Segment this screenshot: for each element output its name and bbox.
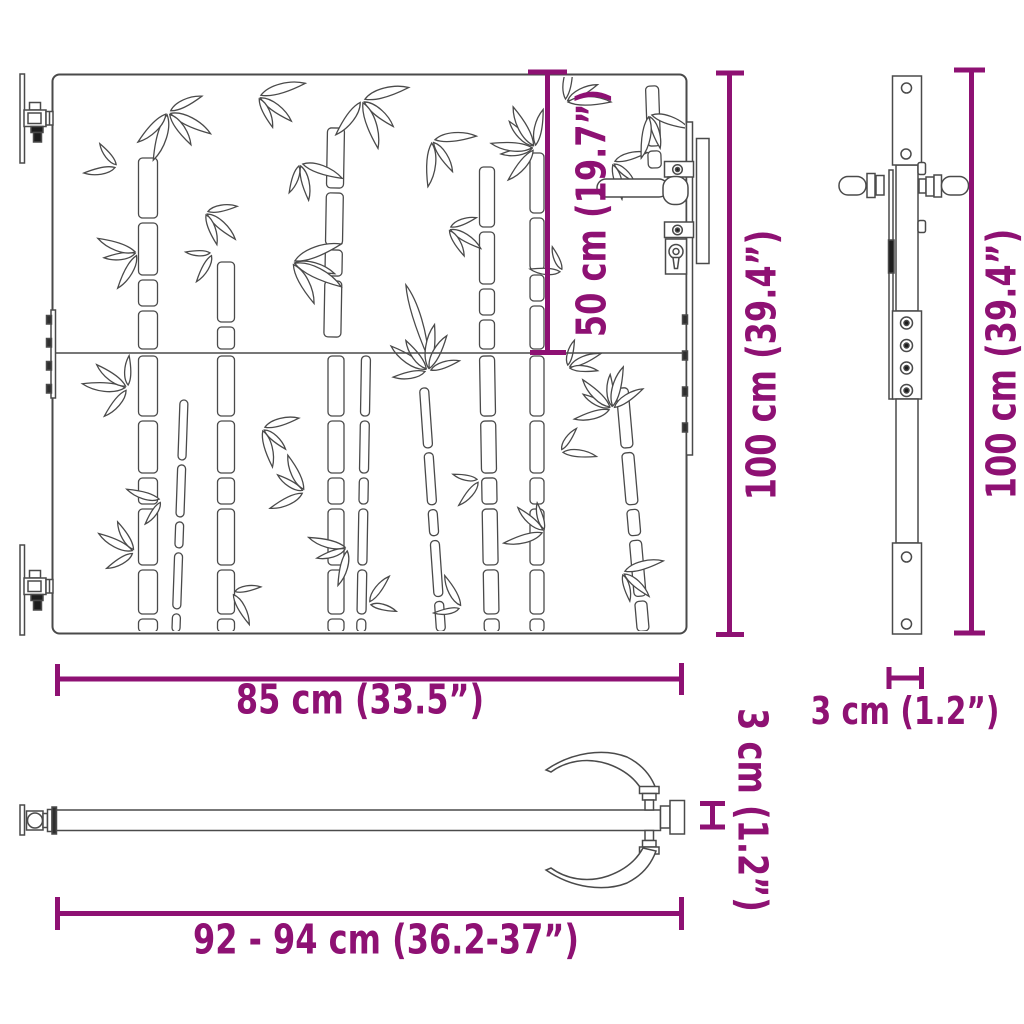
label-total-width: 92 - 94 cm (36.2-37”): [193, 920, 579, 961]
gate-edge-bar: [57, 810, 661, 831]
label-post-depth: 3 cm (1.2”): [811, 692, 1000, 730]
product-dimension-diagram: 50 cm (19.7”) 100 cm (39.4”) 100 cm (39.…: [0, 0, 1024, 1024]
label-panel-height: 50 cm (19.7”): [572, 89, 613, 337]
label-post-height: 100 cm (39.4”): [982, 229, 1023, 499]
hinge-bottom-icon: [24, 571, 53, 611]
dim-post-depth: [889, 667, 922, 689]
pivot-pin-icon: [27, 810, 53, 832]
label-gate-height: 100 cm (39.4”): [742, 230, 783, 500]
hinge-top-icon: [24, 103, 53, 143]
dim-gate-thickness: [700, 804, 725, 828]
hinge-strip-middle: [47, 310, 56, 398]
label-gate-thickness: 3 cm (1.2”): [732, 708, 773, 912]
lock-back-plate: [697, 139, 710, 264]
diagram-canvas: [0, 0, 1024, 1024]
gate-side-view: [839, 76, 969, 634]
wall-hinges: [20, 74, 56, 635]
label-gate-width: 85 cm (33.5”): [236, 680, 484, 721]
wall-plate-side: [20, 805, 25, 835]
gate-bottom-view: [20, 752, 685, 887]
